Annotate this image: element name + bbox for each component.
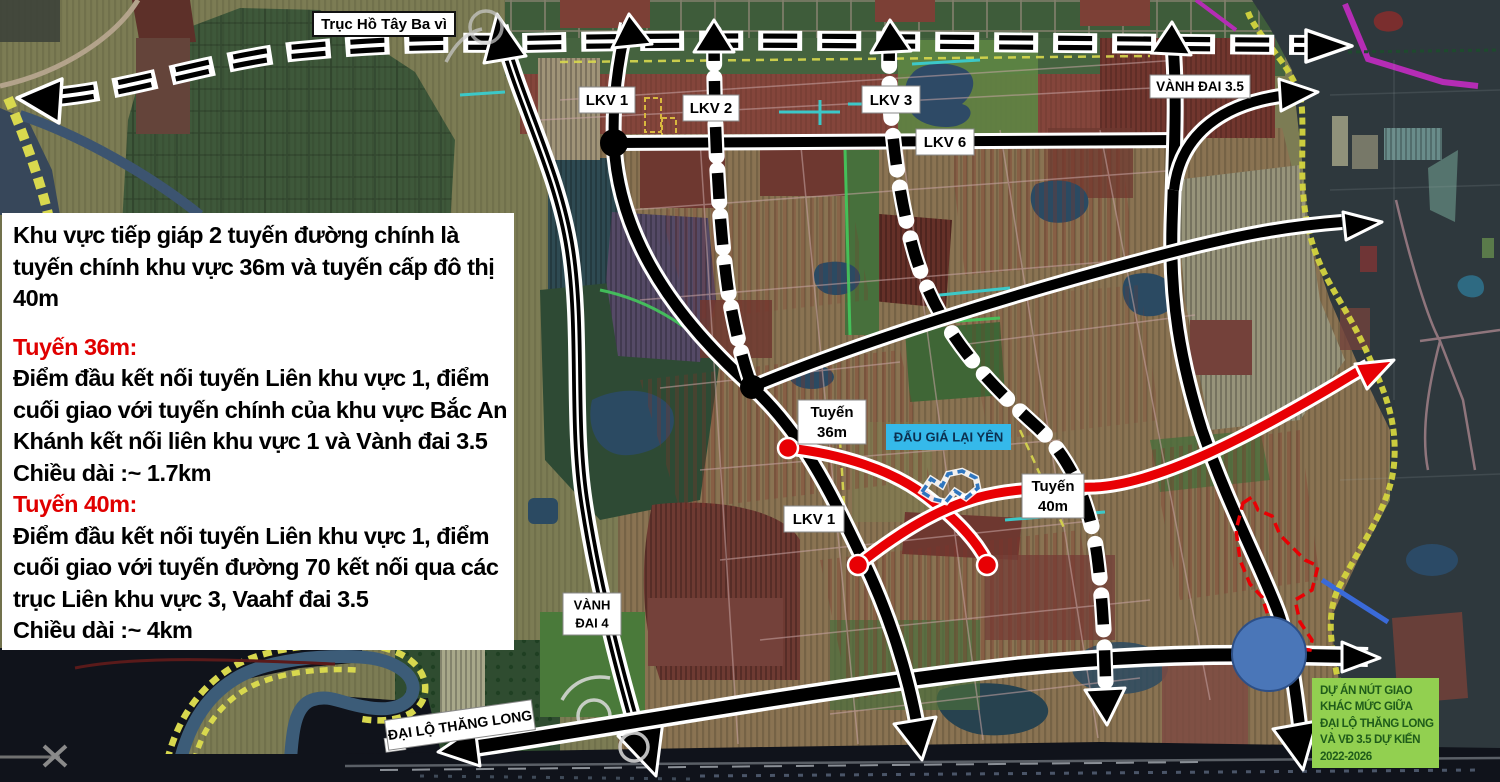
svg-text:ĐẤU GIÁ LẠI YÊN: ĐẤU GIÁ LẠI YÊN — [894, 430, 1004, 445]
svg-text:Tuyến: Tuyến — [810, 404, 853, 421]
svg-text:VÀNH ĐAI 3.5: VÀNH ĐAI 3.5 — [1156, 79, 1244, 94]
svg-text:Trục Hồ Tây Ba vì: Trục Hồ Tây Ba vì — [321, 16, 447, 33]
svg-text:LKV 6: LKV 6 — [924, 134, 967, 151]
svg-text:ĐAI 4: ĐAI 4 — [575, 616, 609, 631]
svg-text:Tuyến: Tuyến — [1031, 478, 1074, 495]
svg-text:LKV 3: LKV 3 — [870, 92, 913, 109]
svg-text:LKV 2: LKV 2 — [690, 100, 733, 117]
svg-text:VÀNH: VÀNH — [574, 598, 611, 613]
svg-text:LKV 1: LKV 1 — [793, 511, 836, 528]
svg-text:LKV 1: LKV 1 — [586, 92, 629, 109]
svg-text:40m: 40m — [1038, 498, 1068, 515]
svg-text:36m: 36m — [817, 424, 847, 441]
